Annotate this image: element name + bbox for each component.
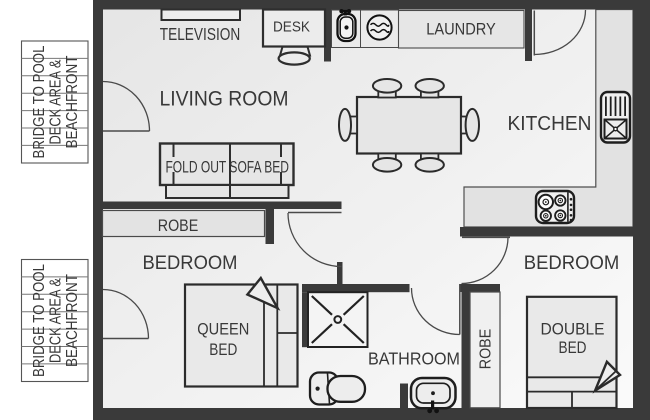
svg-text:DOUBLE: DOUBLE: [541, 320, 605, 339]
svg-text:BED: BED: [209, 340, 237, 359]
svg-text:BEDROOM: BEDROOM: [524, 252, 620, 274]
svg-text:ROBE: ROBE: [478, 329, 495, 370]
svg-text:ROBE: ROBE: [158, 217, 199, 235]
svg-text:BATHROOM: BATHROOM: [368, 349, 460, 369]
svg-text:DECK AREA &: DECK AREA &: [48, 59, 65, 144]
svg-text:TELEVISION: TELEVISION: [160, 24, 241, 44]
svg-text:BRIDGE TO POOL: BRIDGE TO POOL: [31, 45, 48, 158]
svg-text:BEACHFRONT: BEACHFRONT: [64, 55, 81, 148]
svg-text:QUEEN: QUEEN: [197, 320, 249, 339]
svg-text:LAUNDRY: LAUNDRY: [426, 20, 496, 39]
svg-text:BEACHFRONT: BEACHFRONT: [64, 274, 81, 367]
svg-text:FOLD OUT SOFA BED: FOLD OUT SOFA BED: [165, 158, 289, 177]
svg-text:KITCHEN: KITCHEN: [508, 113, 592, 135]
svg-text:LIVING ROOM: LIVING ROOM: [160, 87, 289, 111]
svg-text:BEDROOM: BEDROOM: [143, 252, 238, 274]
svg-text:BED: BED: [559, 338, 587, 357]
svg-text:BRIDGE TO POOL: BRIDGE TO POOL: [31, 264, 48, 377]
svg-text:DECK AREA &: DECK AREA &: [48, 278, 65, 363]
svg-text:DESK: DESK: [273, 19, 310, 36]
